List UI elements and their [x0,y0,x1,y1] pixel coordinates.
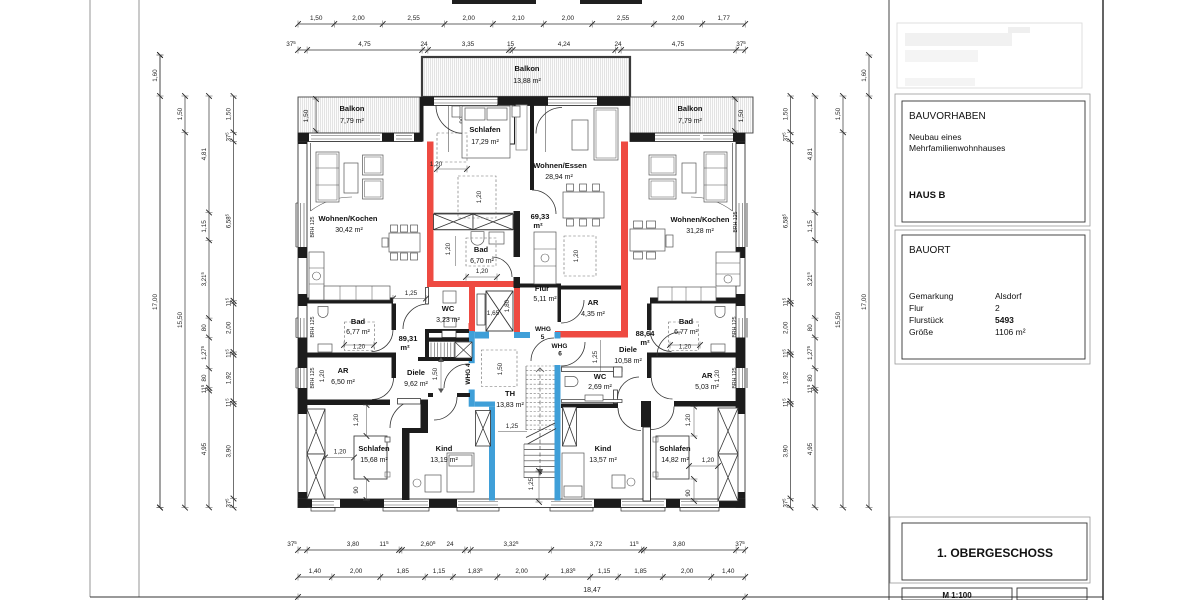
svg-text:3,72: 3,72 [590,541,603,548]
svg-text:69,33: 69,33 [531,212,550,221]
svg-text:1,20: 1,20 [714,369,721,382]
svg-text:2,00: 2,00 [226,321,233,334]
svg-text:90: 90 [353,486,360,494]
svg-text:6,77 m²: 6,77 m² [674,329,698,336]
svg-text:18,47: 18,47 [583,587,601,594]
svg-text:5493: 5493 [995,315,1014,325]
svg-text:2,00: 2,00 [681,568,694,575]
svg-text:2,00: 2,00 [562,15,575,22]
svg-text:1,20: 1,20 [430,161,443,168]
svg-text:2,10: 2,10 [512,15,525,22]
svg-text:1,50: 1,50 [497,362,504,375]
svg-text:3,80: 3,80 [347,541,360,548]
svg-text:7,79 m²: 7,79 m² [678,118,702,125]
svg-text:1,50: 1,50 [783,108,790,121]
svg-text:1106 m²: 1106 m² [995,327,1026,337]
svg-text:1,20: 1,20 [702,457,715,464]
svg-text:1,40: 1,40 [309,568,322,575]
svg-text:m²: m² [640,338,650,347]
svg-text:6,70 m²: 6,70 m² [470,258,494,265]
svg-text:Bad: Bad [474,245,489,254]
svg-text:BAUVORHABEN: BAUVORHABEN [909,111,986,122]
svg-text:1,50: 1,50 [432,367,439,380]
svg-text:WHG: WHG [552,343,568,350]
svg-text:13,19 m²: 13,19 m² [430,457,458,464]
svg-text:1,20: 1,20 [445,242,452,255]
svg-text:BRH 125: BRH 125 [732,367,738,388]
svg-text:15,50: 15,50 [835,312,842,328]
svg-text:24: 24 [614,41,622,48]
svg-text:1,25: 1,25 [528,477,535,490]
svg-text:Bad: Bad [351,317,366,326]
svg-text:HAUS B: HAUS B [909,190,946,201]
svg-text:31,28 m²: 31,28 m² [686,228,714,235]
svg-text:17,00: 17,00 [152,294,159,310]
svg-text:BRH 125: BRH 125 [310,367,316,388]
svg-text:1,50: 1,50 [835,107,842,120]
svg-text:6: 6 [558,351,562,358]
svg-text:Alsdorf: Alsdorf [995,291,1022,301]
svg-text:Balkon: Balkon [677,104,702,113]
svg-text:4,81: 4,81 [201,148,208,161]
svg-text:1,20: 1,20 [334,449,347,456]
svg-text:1,15: 1,15 [598,568,611,575]
svg-text:BRH 125: BRH 125 [733,211,739,232]
svg-text:88,64: 88,64 [636,329,656,338]
svg-text:80: 80 [807,374,814,382]
svg-text:6,50 m²: 6,50 m² [331,379,355,386]
svg-text:Gemarkung: Gemarkung [909,291,954,301]
svg-text:2: 2 [995,303,1000,313]
svg-text:5,11 m²: 5,11 m² [533,296,557,303]
svg-text:17,00: 17,00 [861,294,868,310]
svg-text:4,24: 4,24 [558,41,571,48]
svg-text:7,79 m²: 7,79 m² [340,118,364,125]
svg-text:2,00: 2,00 [672,15,685,22]
svg-text:WHG: WHG [535,326,551,333]
svg-text:1,15: 1,15 [201,220,208,233]
svg-text:3,23 m²: 3,23 m² [436,317,460,324]
svg-text:2,00: 2,00 [783,321,790,334]
svg-text:Mehrfamilienwohnhauses: Mehrfamilienwohnhauses [909,143,1005,153]
svg-text:1,20: 1,20 [573,249,580,262]
svg-text:BRH 125: BRH 125 [732,316,738,337]
svg-text:Bad: Bad [679,317,694,326]
svg-text:1,20: 1,20 [353,413,360,426]
svg-text:15,50: 15,50 [177,312,184,328]
svg-text:1,77: 1,77 [717,15,730,22]
svg-text:89,31: 89,31 [399,334,418,343]
svg-text:Kind: Kind [595,444,612,453]
svg-text:2,00: 2,00 [462,15,475,22]
svg-text:1,85: 1,85 [396,568,409,575]
svg-text:1,25: 1,25 [506,423,519,430]
svg-text:1,50: 1,50 [177,107,184,120]
svg-text:1,92: 1,92 [226,371,233,384]
svg-text:Wohnen/Kochen: Wohnen/Kochen [670,215,729,224]
svg-text:10,58 m²: 10,58 m² [614,358,642,365]
svg-text:1. OBERGESCHOSS: 1. OBERGESCHOSS [937,546,1053,560]
svg-text:4,95: 4,95 [807,442,814,455]
svg-text:24: 24 [446,541,454,548]
svg-text:m²: m² [400,343,410,352]
svg-text:AR: AR [702,371,713,380]
svg-text:Diele: Diele [619,345,637,354]
svg-text:WC: WC [442,304,455,313]
svg-text:4,95: 4,95 [201,442,208,455]
svg-text:2,69 m²: 2,69 m² [588,384,612,391]
svg-text:Neubau eines: Neubau eines [909,132,961,142]
svg-text:4,81: 4,81 [807,148,814,161]
svg-text:5: 5 [541,334,545,341]
svg-text:1,50: 1,50 [738,109,745,122]
svg-text:3,80: 3,80 [673,541,686,548]
svg-text:1,20: 1,20 [476,190,483,203]
svg-text:2,00: 2,00 [352,15,365,22]
svg-text:24: 24 [420,41,428,48]
svg-text:Schlafen: Schlafen [358,444,390,453]
svg-text:1,92: 1,92 [783,371,790,384]
svg-text:28,94 m²: 28,94 m² [545,174,573,181]
svg-text:3,35: 3,35 [462,41,475,48]
svg-text:1,60: 1,60 [861,69,868,82]
svg-text:17,29 m²: 17,29 m² [471,139,499,146]
svg-text:1,20: 1,20 [353,344,366,351]
svg-text:Flur: Flur [535,284,549,293]
svg-text:1,15: 1,15 [433,568,446,575]
svg-text:2,55: 2,55 [617,15,630,22]
svg-text:13,88 m²: 13,88 m² [513,78,541,85]
svg-text:WC: WC [594,372,607,381]
svg-text:Schlafen: Schlafen [659,444,691,453]
svg-text:Flur: Flur [909,303,924,313]
svg-text:1,50: 1,50 [310,15,323,22]
svg-text:15,68 m²: 15,68 m² [360,457,388,464]
svg-text:80: 80 [201,374,208,382]
svg-text:Wohnen/Kochen: Wohnen/Kochen [318,214,377,223]
svg-text:1,25: 1,25 [405,290,418,297]
svg-text:1,50: 1,50 [303,109,310,122]
svg-text:14,82 m²: 14,82 m² [661,457,689,464]
svg-text:Kind: Kind [436,444,453,453]
svg-text:1,50: 1,50 [226,108,233,121]
svg-text:BAUORT: BAUORT [909,245,951,256]
svg-text:2,00: 2,00 [515,568,528,575]
svg-text:Flurstück: Flurstück [909,315,944,325]
svg-text:1,40: 1,40 [722,568,735,575]
svg-text:80: 80 [201,324,208,332]
svg-text:30,42 m²: 30,42 m² [335,227,363,234]
svg-text:2,55: 2,55 [407,15,420,22]
svg-text:Wohnen/Essen: Wohnen/Essen [533,161,587,170]
svg-text:1,20: 1,20 [679,344,692,351]
svg-text:Größe: Größe [909,327,933,337]
svg-text:2,00: 2,00 [350,568,363,575]
svg-text:WHG 4: WHG 4 [465,363,472,385]
svg-text:1,20: 1,20 [319,369,326,382]
svg-text:1,65: 1,65 [487,310,500,317]
svg-text:1,20: 1,20 [476,268,489,275]
svg-text:4,35 m²: 4,35 m² [581,311,605,318]
svg-text:6,77 m²: 6,77 m² [346,329,370,336]
svg-text:1,80: 1,80 [504,299,511,312]
svg-text:Balkon: Balkon [339,104,364,113]
svg-text:3,90: 3,90 [226,445,233,458]
svg-text:Balkon: Balkon [514,64,539,73]
svg-text:13,57 m²: 13,57 m² [589,457,617,464]
svg-text:4,75: 4,75 [358,41,371,48]
svg-text:13,83 m²: 13,83 m² [496,402,524,409]
svg-text:1,20: 1,20 [685,413,692,426]
svg-text:AR: AR [338,366,349,375]
svg-text:1,25: 1,25 [592,350,599,363]
svg-text:3,90: 3,90 [783,445,790,458]
svg-text:Diele: Diele [407,368,425,377]
svg-text:1,15: 1,15 [807,220,814,233]
svg-text:M 1:100: M 1:100 [942,591,972,600]
svg-text:BRH 125: BRH 125 [310,216,316,237]
svg-text:BRH 125: BRH 125 [310,316,316,337]
svg-text:80: 80 [807,324,814,332]
svg-text:4,75: 4,75 [672,41,685,48]
svg-text:15: 15 [507,41,515,48]
svg-text:90: 90 [685,489,692,497]
svg-text:m²: m² [533,221,543,230]
svg-text:Schlafen: Schlafen [469,125,501,134]
svg-text:1,85: 1,85 [634,568,647,575]
svg-text:5,03 m²: 5,03 m² [695,384,719,391]
svg-text:TH: TH [505,389,515,398]
svg-text:AR: AR [588,298,599,307]
svg-text:9,62 m²: 9,62 m² [404,381,428,388]
svg-text:1,60: 1,60 [152,69,159,82]
